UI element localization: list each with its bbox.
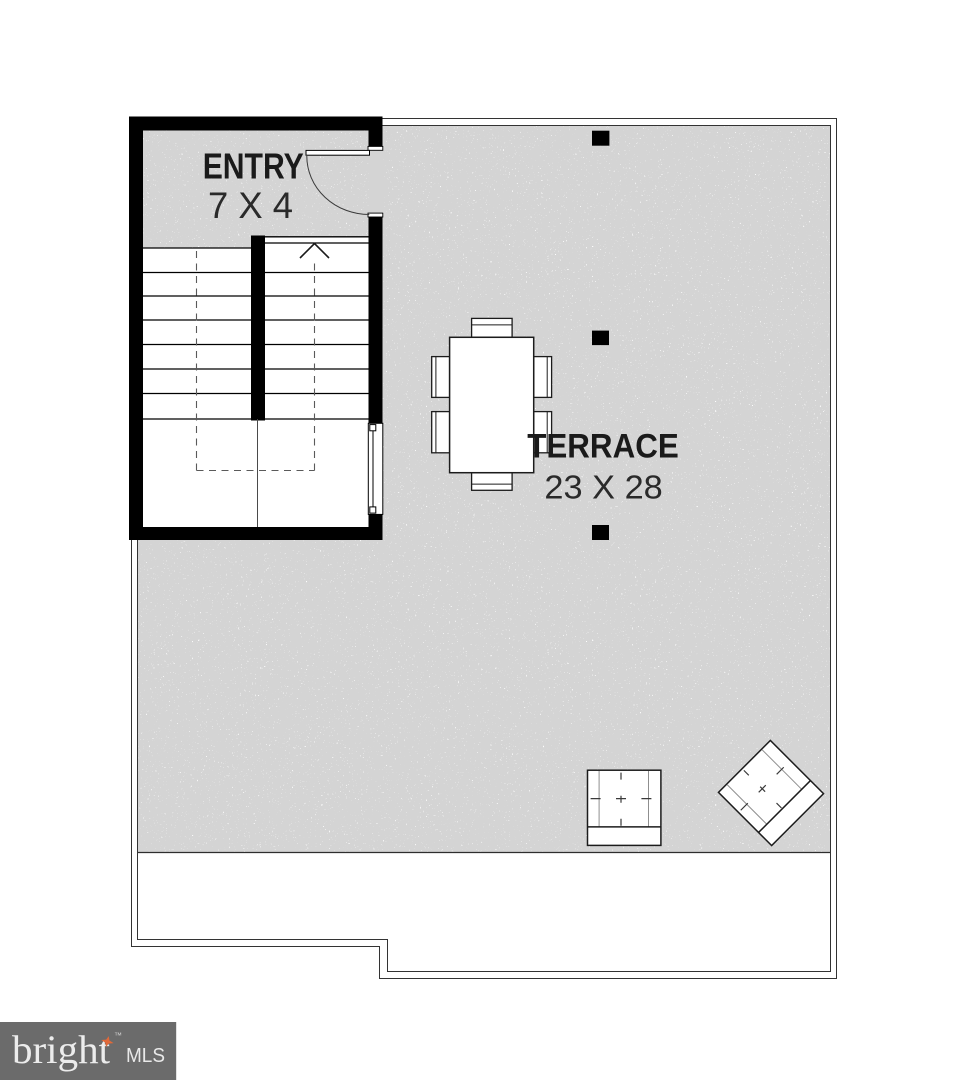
svg-text:MLS: MLS: [126, 1044, 165, 1067]
svg-text:™: ™: [114, 1031, 122, 1040]
svg-text:23 X 28: 23 X 28: [544, 469, 662, 506]
svg-text:TERRACE: TERRACE: [527, 428, 679, 466]
svg-text:7 X 4: 7 X 4: [208, 185, 293, 226]
svg-text:ENTRY: ENTRY: [203, 147, 304, 187]
svg-text:bright: bright: [12, 1027, 110, 1072]
